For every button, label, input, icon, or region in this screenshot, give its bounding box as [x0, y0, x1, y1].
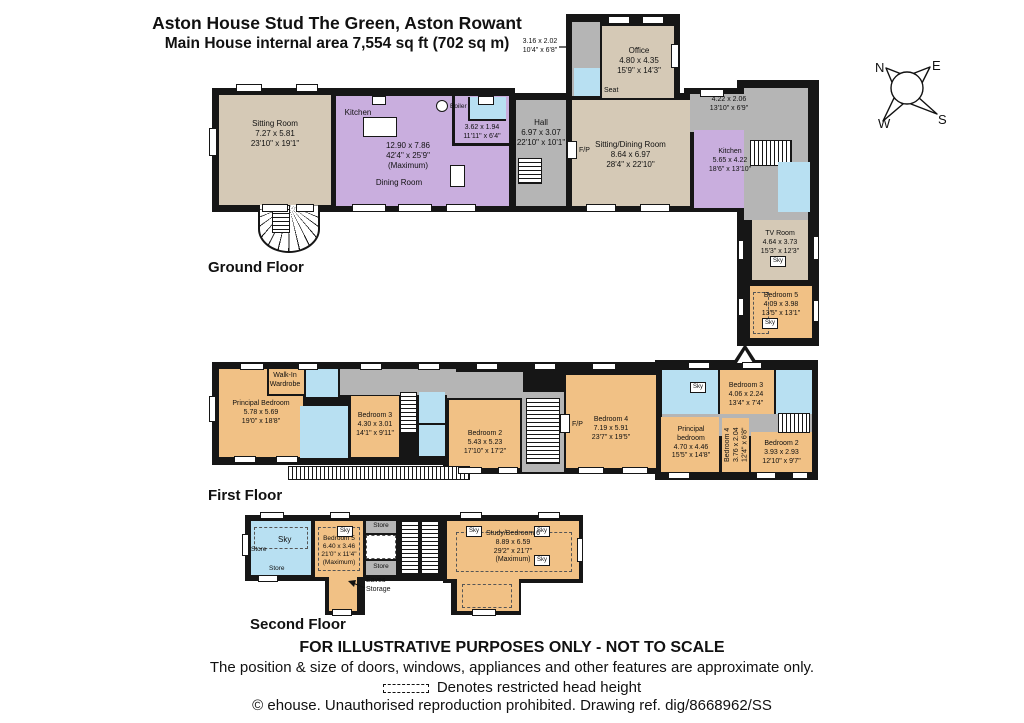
- store-label: Store: [251, 546, 267, 553]
- window: [398, 204, 432, 212]
- window: [792, 472, 808, 479]
- room-label-kitchen2: Kitchen5.65 x 4.2218'6" x 13'10": [696, 148, 764, 174]
- window: [330, 512, 350, 519]
- disclaimer-not-to-scale: FOR ILLUSTRATIVE PURPOSES ONLY - NOT TO …: [0, 639, 1024, 657]
- skylight-label: Sky: [278, 535, 291, 544]
- appliance-icon: [372, 96, 386, 105]
- page-subtitle: Main House internal area 7,554 sq ft (70…: [137, 35, 537, 53]
- room-label-bedroom2: Bedroom 25.43 x 5.2317'10" x 17'2": [450, 430, 520, 456]
- room-ensuite: [306, 369, 338, 397]
- restricted-head-height-icon: [383, 684, 429, 693]
- window: [472, 609, 496, 616]
- compass-north-label: N: [875, 60, 884, 75]
- window: [578, 467, 604, 474]
- second-floor-title: Second Floor: [250, 616, 346, 633]
- room-sitting-room: [219, 95, 331, 205]
- window: [460, 512, 482, 519]
- window: [242, 534, 249, 556]
- hall-stairs: [518, 158, 542, 184]
- room-right-ensuite: [776, 370, 812, 418]
- room-label-second-bedroom5: Bedroom 56.40 x 3.4621'0" x 11'4"(Maximu…: [311, 535, 367, 568]
- main-stairs: [526, 398, 560, 464]
- restricted-head-height-area: [462, 584, 512, 608]
- room-label-principal-bedroom-right: Principalbedroom4.70 x 4.4615'5" x 14'8": [663, 426, 719, 461]
- window: [418, 363, 440, 370]
- store-label: Store: [269, 565, 285, 572]
- disclaimer-approximate: The position & size of doors, windows, a…: [0, 659, 1024, 676]
- eaves-void: [366, 535, 396, 559]
- first-floor-title: First Floor: [208, 487, 282, 504]
- window: [813, 300, 819, 322]
- fireplace-icon: [567, 141, 577, 159]
- ground-floor-title: Ground Floor: [208, 259, 304, 276]
- boiler-label: Boiler: [450, 103, 467, 110]
- room-label-sitting-room: Sitting Room7.27 x 5.8123'10" x 19'1": [222, 119, 328, 149]
- boiler-icon: [436, 100, 448, 112]
- window: [240, 363, 264, 370]
- floorplan-page: Aston House Stud The Green, Aston Rowant…: [0, 0, 1024, 723]
- window: [534, 363, 556, 370]
- window: [332, 609, 352, 616]
- window: [209, 128, 217, 156]
- restricted-head-height-text: Denotes restricted head height: [437, 679, 641, 696]
- room-label-kitchen: Kitchen: [333, 108, 383, 118]
- second-floor-stairs: [421, 521, 439, 575]
- internal-wall: [419, 423, 445, 425]
- copyright-line: © ehouse. Unauthorised reproduction proh…: [0, 697, 1024, 714]
- compass-rose-icon: N E S W: [860, 46, 960, 138]
- window: [260, 512, 284, 519]
- eaves-arrow-icon: [347, 578, 367, 592]
- first-floor-stairs: [400, 392, 417, 434]
- window: [538, 512, 560, 519]
- window: [498, 467, 518, 474]
- room-label-bedroom3-right: Bedroom 34.06 x 2.2413'4" x 7'4": [716, 382, 776, 408]
- window: [236, 84, 262, 92]
- room-label-walk-in-wardrobe: Walk-InWardrobe: [268, 372, 302, 390]
- window: [642, 16, 664, 24]
- compass-south-label: S: [938, 112, 947, 127]
- balcony-decking: [288, 466, 470, 480]
- room-label-hall: Hall6.97 x 3.0722'10" x 10'1": [515, 118, 567, 148]
- room-office-wc: [574, 68, 600, 96]
- room-label-utility: 3.62 x 1.9411'11" x 6'4": [455, 124, 509, 142]
- room-family-bathroom: [300, 406, 348, 458]
- compass-east-label: E: [932, 58, 941, 73]
- landing-corridor: [447, 372, 523, 398]
- window: [738, 240, 744, 260]
- page-title: Aston House Stud The Green, Aston Rowant: [137, 13, 537, 34]
- window: [738, 298, 744, 316]
- store-label: Store: [366, 522, 396, 530]
- room-label-bedroom2-right: Bedroom 23.93 x 2.9312'10" x 9'7": [751, 440, 812, 466]
- eaves-storage-label: EavesStorage: [366, 577, 406, 595]
- window: [476, 363, 498, 370]
- window: [592, 363, 616, 370]
- window: [458, 467, 482, 474]
- window: [577, 538, 583, 562]
- room-label-principal-bedroom: Principal Bedroom5.78 x 5.6919'0" x 18'8…: [219, 400, 303, 426]
- window: [608, 16, 630, 24]
- room-rear-bathroom: [778, 162, 810, 212]
- window: [276, 456, 298, 463]
- window: [622, 467, 648, 474]
- kitchen-island: [363, 117, 397, 137]
- store-label: Store: [366, 563, 396, 571]
- window: [668, 472, 690, 479]
- appliance-icon: [478, 96, 494, 105]
- second-floor-stairs: [401, 521, 419, 575]
- window: [209, 396, 216, 422]
- window: [742, 362, 762, 369]
- compass-west-label: W: [878, 116, 891, 131]
- skylight-icon: Sky: [762, 318, 778, 329]
- window: [688, 362, 710, 369]
- room-label-porch: 4.22 x 2.0613'10" x 6'9": [694, 96, 764, 114]
- window: [262, 204, 288, 212]
- window: [296, 84, 318, 92]
- dining-table: [450, 165, 465, 187]
- room-label-study-bedroom6: Study/Bedroom 68.89 x 6.5929'2" x 21'7"(…: [473, 530, 553, 565]
- window: [586, 204, 616, 212]
- room-label-tv-room: TV Room4.64 x 3.7315'3" x 12'3": [750, 230, 810, 256]
- room-label-ground-bedroom5: Bedroom 54.09 x 3.9813'5" x 13'1": [751, 292, 811, 318]
- window: [234, 456, 256, 463]
- window: [296, 204, 314, 212]
- room-label-bedroom4-right: Bedroom 43.76 x 2.0412'4" x 6'8": [724, 420, 748, 470]
- window: [258, 575, 278, 582]
- room-label-bedroom4: Bedroom 47.19 x 5.9123'7" x 19'5": [567, 416, 655, 442]
- window: [360, 363, 382, 370]
- window: [756, 472, 776, 479]
- room-label-bedroom3: Bedroom 34.30 x 3.0114'1" x 9'11": [351, 412, 399, 438]
- room-label-sitting-dining: Sitting/Dining Room8.64 x 6.9728'4" x 22…: [578, 140, 683, 170]
- window: [446, 204, 476, 212]
- window: [298, 363, 318, 370]
- room-hall: [516, 100, 566, 206]
- window: [640, 204, 670, 212]
- room-label-kitchen-dining-dims: 12.90 x 7.8642'4" x 25'9"(Maximum): [368, 141, 448, 171]
- restricted-head-height-legend: Denotes restricted head height: [0, 679, 1024, 696]
- skylight-icon: Sky: [770, 256, 786, 267]
- window: [352, 204, 386, 212]
- skylight-icon: Sky: [690, 382, 706, 393]
- internal-wall: [452, 143, 509, 146]
- room-label-office: Office4.80 x 4.3515'9" x 14'3": [604, 46, 674, 76]
- seat-label: Seat: [604, 87, 618, 94]
- room-label-dining-room: Dining Room: [368, 178, 430, 188]
- right-stairs: [778, 413, 810, 433]
- window: [813, 236, 819, 260]
- office-lobby-dims-annotation: 3.16 x 2.0210'4" x 6'8": [518, 38, 562, 56]
